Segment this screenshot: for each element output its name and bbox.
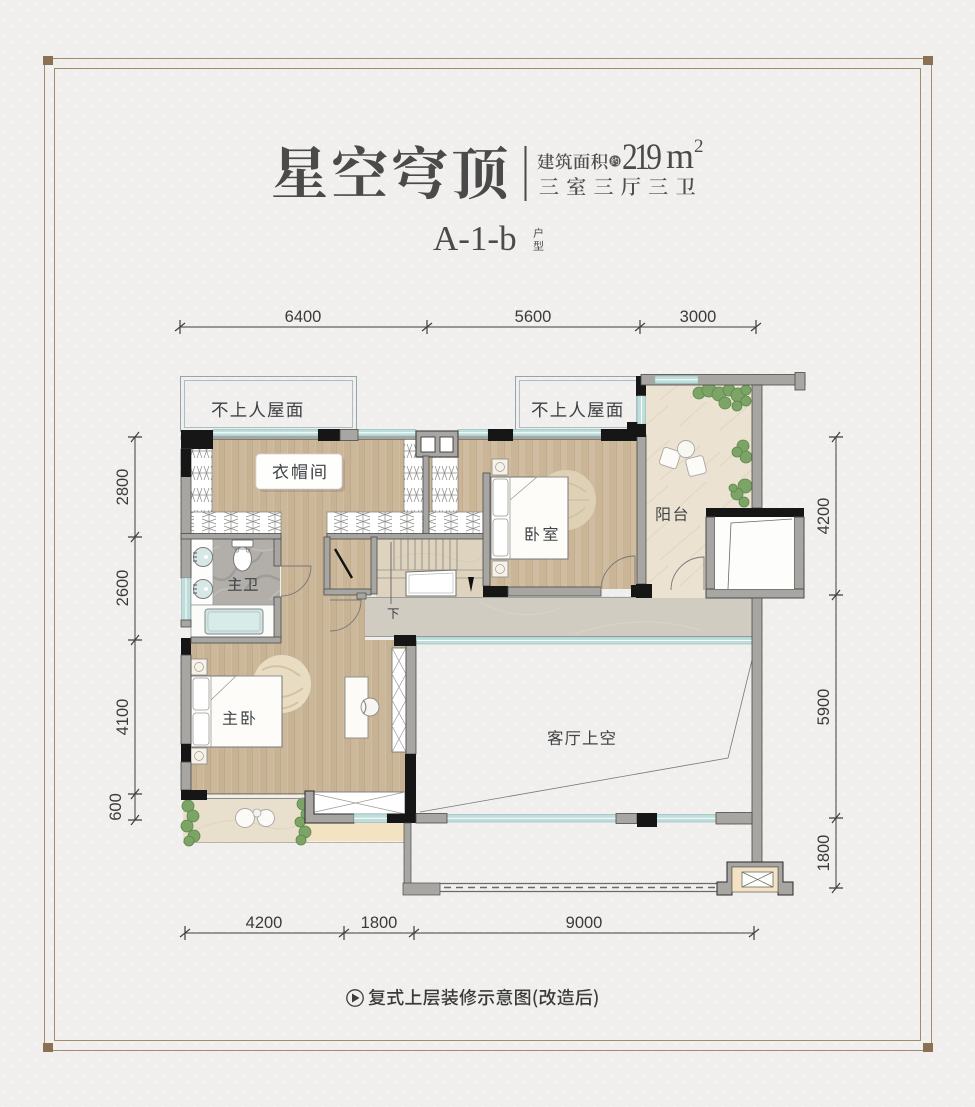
svg-text:1800: 1800 xyxy=(361,914,398,932)
svg-text:2800: 2800 xyxy=(114,469,132,506)
svg-text:1800: 1800 xyxy=(815,835,833,872)
svg-text:4200: 4200 xyxy=(246,914,283,932)
svg-text:6400: 6400 xyxy=(285,308,322,326)
svg-text:2: 2 xyxy=(694,136,704,157)
svg-text:219: 219 xyxy=(622,137,662,178)
svg-text:4100: 4100 xyxy=(114,699,132,736)
svg-text:600: 600 xyxy=(107,793,125,821)
svg-text:3000: 3000 xyxy=(680,308,717,326)
svg-text:2600: 2600 xyxy=(114,570,132,607)
svg-text:9000: 9000 xyxy=(566,914,603,932)
svg-text:5600: 5600 xyxy=(515,308,552,326)
svg-text:5900: 5900 xyxy=(815,689,833,726)
svg-text:m: m xyxy=(666,136,694,176)
svg-text:A-1-b: A-1-b xyxy=(433,219,517,258)
svg-text:4200: 4200 xyxy=(815,498,833,535)
